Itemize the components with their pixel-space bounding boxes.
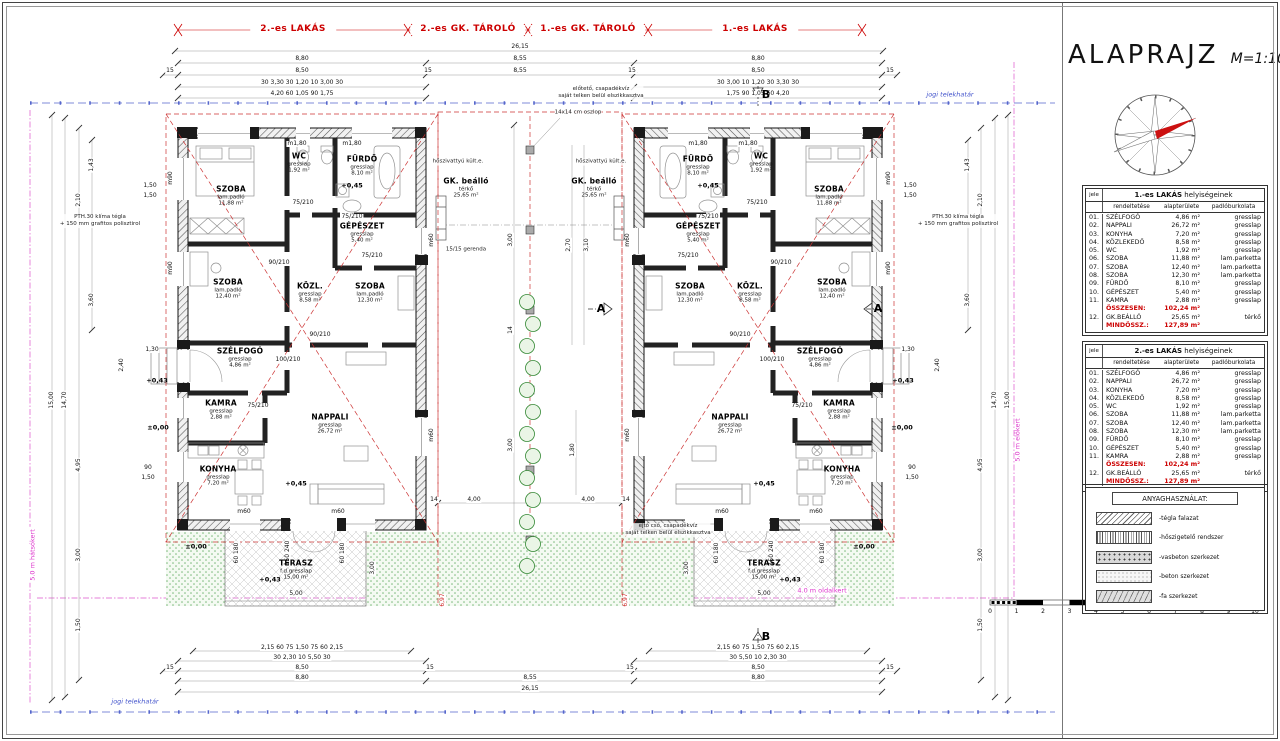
table-row: 01.SZÉLFOGÓ 4,86 m²gresslap [1086, 214, 1264, 222]
legend-title: ANYAGHASZNÁLAT: [1112, 492, 1238, 505]
table-row: 10.GÉPÉSZET 5,40 m²gresslap [1086, 289, 1264, 297]
title-block: ALAPRAJZ M=1:100 [1068, 40, 1268, 70]
table-row: 09.FÜRDŐ 8,10 m²gresslap [1086, 280, 1264, 288]
legend-item-label: -hőszigetelő rendszer [1159, 534, 1223, 541]
legend-item-label: -fa szerkezet [1159, 593, 1197, 600]
table-row: 07.SZOBA 12,40 m²lam.parketta [1086, 264, 1264, 272]
table-row: 04.KÖZLEKEDŐ 8,58 m²gresslap [1086, 239, 1264, 247]
floor-plan-sheet: 2.-es LAKÁS2.-es GK. TÁROLÓ1.-es GK. TÁR… [0, 0, 1280, 741]
table-row: 12.GK.BEÁLLÓ 25,65 m²térkő [1086, 470, 1264, 478]
table-row: 02.NAPPALI 26,72 m²gresslap [1086, 222, 1264, 230]
table-row: 01.SZÉLFOGÓ 4,86 m²gresslap [1086, 370, 1264, 378]
table-row: 03.KONYHA 7,20 m²gresslap [1086, 231, 1264, 239]
table-row: 05.WC 1,92 m²gresslap [1086, 247, 1264, 255]
table-row: 07.SZOBA 12,40 m²lam.parketta [1086, 420, 1264, 428]
house-right [614, 114, 909, 606]
material-swatch [1096, 570, 1152, 583]
table-header: rendeltetése alapterülete padlóburkolata [1086, 202, 1264, 213]
table-title: 1.-es LAKÁS [1134, 191, 1182, 199]
table-row: 09.FÜRDŐ 8,10 m²gresslap [1086, 436, 1264, 444]
table-row: 04.KÖZLEKEDŐ 8,58 m²gresslap [1086, 395, 1264, 403]
room-table-house1: jele 1.-es LAKÁS helyiségeinek rendeltet… [1085, 188, 1265, 333]
table-title: 2.-es LAKÁS [1134, 347, 1182, 355]
table-row: MINDÖSSZ.: 127,89 m² [1086, 478, 1264, 486]
legend-item: -fa szerkezet [1096, 590, 1254, 603]
legend-item: -vasbeton szerkezet [1096, 551, 1254, 564]
page-title: ALAPRAJZ [1068, 40, 1219, 70]
legend-item: -hőszigetelő rendszer [1096, 531, 1254, 544]
table-row: 10.GÉPÉSZET 5,40 m²gresslap [1086, 445, 1264, 453]
legend-item: -beton szerkezet [1096, 570, 1254, 583]
table-row: 06.SZOBA 11,88 m²lam.parketta [1086, 255, 1264, 263]
house-left [151, 114, 446, 606]
legend-item-label: -beton szerkezet [1159, 573, 1209, 580]
legend-item: -tégla falazat [1096, 512, 1254, 525]
legend-item-label: -vasbeton szerkezet [1159, 554, 1219, 561]
table-row: MINDÖSSZ.: 127,89 m² [1086, 322, 1264, 330]
compass-icon [1114, 95, 1196, 175]
table-col-jele: jele [1086, 345, 1103, 357]
zone-band [174, 24, 866, 36]
material-swatch [1096, 512, 1152, 525]
table-col-jele: jele [1086, 189, 1103, 201]
table-row: 03.KONYHA 7,20 m²gresslap [1086, 387, 1264, 395]
table-row: ÖSSZESEN: 102,24 m² [1086, 461, 1264, 469]
table-row: ÖSSZESEN: 102,24 m² [1086, 305, 1264, 313]
room-table-house2: jele 2.-es LAKÁS helyiségeinek rendeltet… [1085, 344, 1265, 489]
table-header: rendeltetése alapterülete padlóburkolata [1086, 358, 1264, 369]
materials-legend: ANYAGHASZNÁLAT: -tégla falazat -hősziget… [1085, 487, 1265, 611]
material-swatch [1096, 531, 1152, 544]
table-row: 12.GK.BEÁLLÓ 25,65 m²térkő [1086, 314, 1264, 322]
table-row: 02.NAPPALI 26,72 m²gresslap [1086, 378, 1264, 386]
table-row: 06.SZOBA 11,88 m²lam.parketta [1086, 411, 1264, 419]
material-swatch [1096, 590, 1152, 603]
table-row: 05.WC 1,92 m²gresslap [1086, 403, 1264, 411]
drawing-scale: M=1:100 [1231, 51, 1280, 67]
panel-divider [1062, 2, 1063, 739]
material-swatch [1096, 551, 1152, 564]
legend-item-label: -tégla falazat [1159, 515, 1199, 522]
carport [438, 112, 622, 606]
furniture [188, 146, 414, 505]
